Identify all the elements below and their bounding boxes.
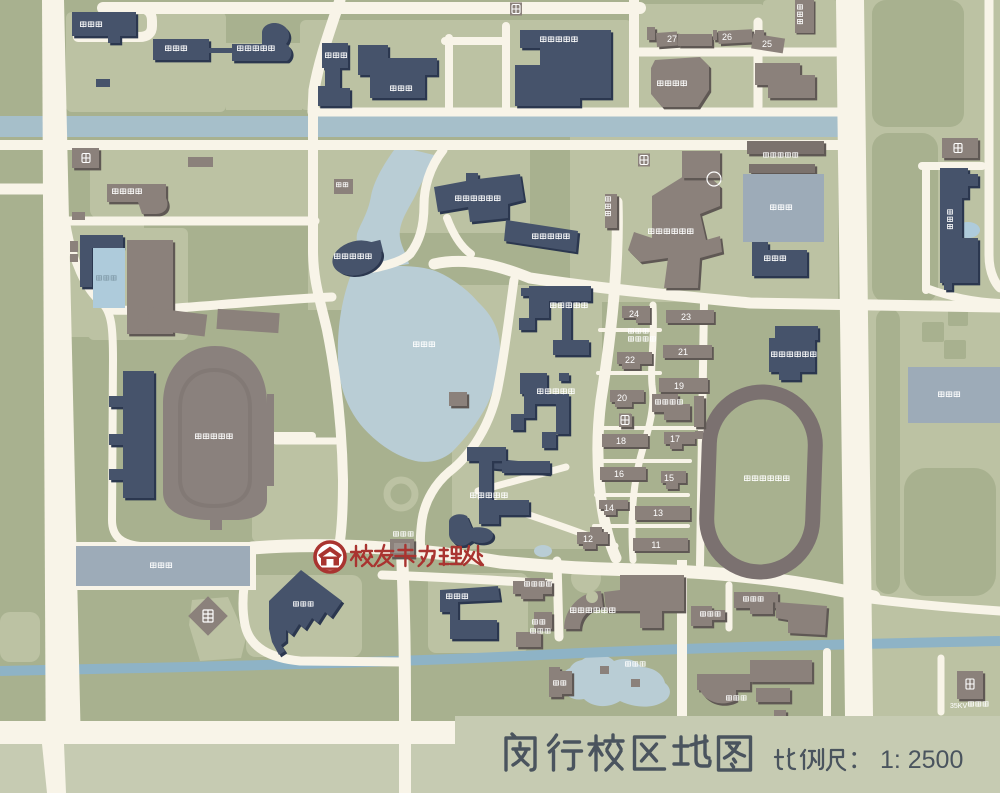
svg-text:13: 13 [653,508,663,518]
svg-text:24: 24 [629,309,639,319]
svg-text:25: 25 [762,39,772,49]
svg-text:20: 20 [617,393,627,403]
svg-text:23: 23 [681,312,691,322]
svg-text:19: 19 [674,381,684,391]
svg-text:18: 18 [616,436,626,446]
svg-text:17: 17 [670,434,680,444]
svg-text:15: 15 [664,473,674,483]
svg-text:12: 12 [583,534,593,544]
svg-text:27: 27 [667,34,677,44]
svg-text:21: 21 [678,347,688,357]
svg-text:26: 26 [722,32,732,42]
svg-text:16: 16 [614,469,624,479]
svg-text:11: 11 [651,540,660,550]
svg-text:： 1: 2500: ： 1: 2500 [848,746,963,774]
svg-text:14: 14 [604,503,614,513]
svg-text:35KV: 35KV [950,703,967,710]
svg-text:22: 22 [625,355,635,365]
